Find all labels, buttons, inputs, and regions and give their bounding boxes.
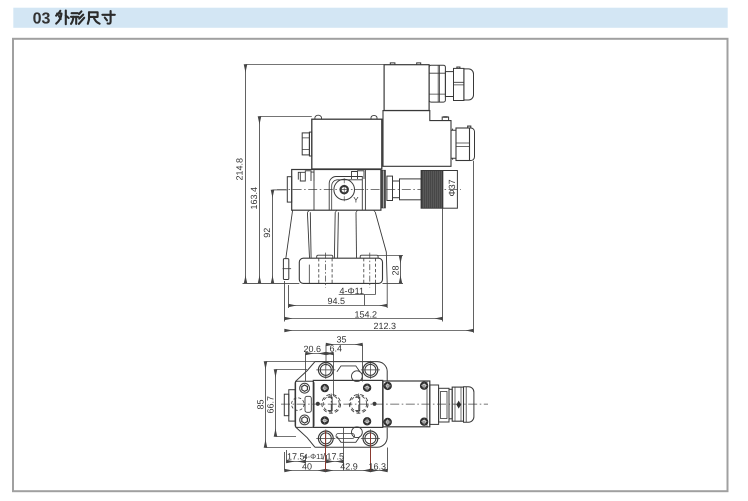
svg-text:85: 85 bbox=[256, 399, 266, 409]
svg-text:6.4: 6.4 bbox=[330, 343, 343, 353]
svg-text:212.3: 212.3 bbox=[374, 321, 397, 331]
svg-text:4-Φ11: 4-Φ11 bbox=[340, 286, 365, 296]
svg-text:94.5: 94.5 bbox=[328, 296, 346, 306]
svg-text:16.3: 16.3 bbox=[369, 462, 387, 472]
svg-text:214.8: 214.8 bbox=[235, 158, 245, 181]
svg-text:17.5: 17.5 bbox=[287, 452, 305, 462]
svg-text:4-Φ11: 4-Φ11 bbox=[304, 452, 324, 461]
svg-text:Y: Y bbox=[353, 196, 359, 205]
svg-text:28: 28 bbox=[391, 265, 401, 275]
svg-text:42.9: 42.9 bbox=[340, 462, 358, 472]
svg-text:154.2: 154.2 bbox=[355, 310, 378, 320]
svg-text:163.4: 163.4 bbox=[249, 187, 259, 210]
svg-text:92: 92 bbox=[262, 228, 272, 238]
svg-text:66.7: 66.7 bbox=[265, 396, 275, 414]
svg-text:20.6: 20.6 bbox=[304, 344, 322, 354]
svg-text:Φ37: Φ37 bbox=[447, 179, 457, 196]
svg-text:40: 40 bbox=[302, 462, 312, 472]
svg-text:17.5: 17.5 bbox=[327, 452, 345, 462]
svg-text:03: 03 bbox=[33, 11, 51, 28]
